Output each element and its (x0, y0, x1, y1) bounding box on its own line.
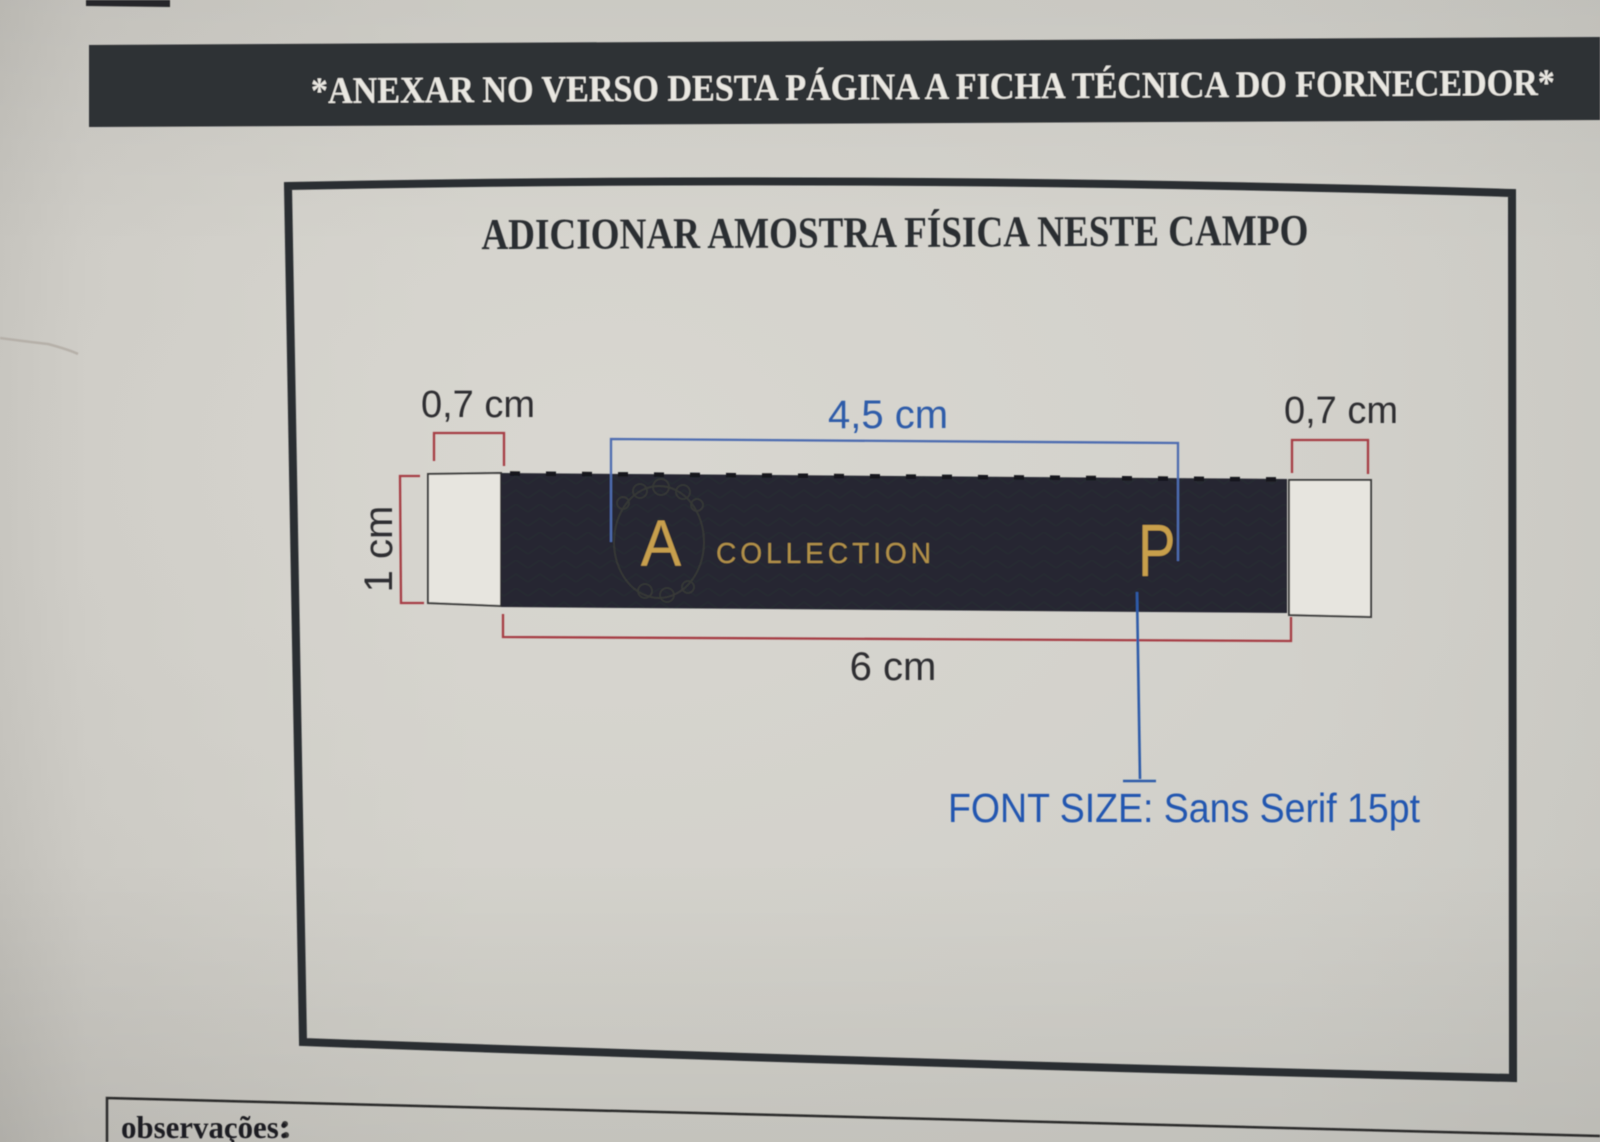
svg-text:observações:: observações: (121, 1109, 289, 1142)
svg-text:COLLECTION: COLLECTION (716, 538, 935, 570)
svg-text:0,7 cm: 0,7 cm (421, 384, 535, 426)
svg-text:1 cm: 1 cm (357, 506, 401, 593)
svg-text:P: P (1138, 510, 1176, 592)
svg-text:A: A (641, 508, 682, 581)
svg-text:6 cm: 6 cm (850, 645, 937, 689)
svg-text:ADICIONAR AMOSTRA FÍSICA NESTE: ADICIONAR AMOSTRA FÍSICA NESTE CAMPO (481, 206, 1308, 259)
svg-text:4,5 cm: 4,5 cm (828, 393, 948, 437)
svg-text:FONT SIZE: Sans Serif 15pt: FONT SIZE: Sans Serif 15pt (948, 785, 1421, 831)
svg-text:0,7 cm: 0,7 cm (1284, 390, 1398, 432)
svg-text:*ANEXAR NO VERSO DESTA PÁGINA: *ANEXAR NO VERSO DESTA PÁGINA A FICHA TÉ… (311, 62, 1555, 112)
